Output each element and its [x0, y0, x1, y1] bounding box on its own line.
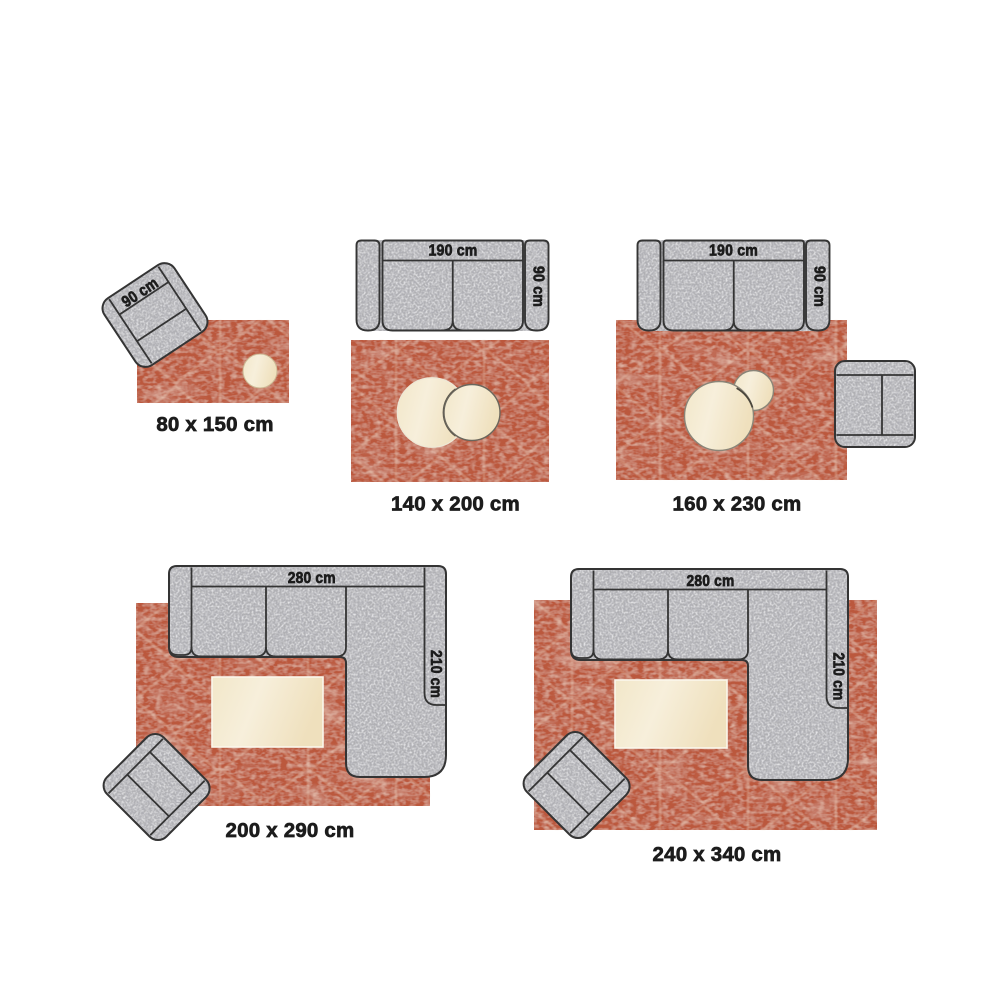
svg-text:240 x 340 cm: 240 x 340 cm: [653, 843, 782, 866]
svg-text:80 x 150 cm: 80 x 150 cm: [156, 413, 273, 436]
svg-text:210 cm: 210 cm: [427, 650, 444, 698]
svg-text:280 cm: 280 cm: [687, 573, 735, 590]
svg-text:190 cm: 190 cm: [429, 243, 478, 260]
svg-text:280 cm: 280 cm: [288, 570, 336, 587]
svg-text:90 cm: 90 cm: [811, 266, 828, 307]
svg-text:200 x 290 cm: 200 x 290 cm: [226, 819, 355, 842]
svg-text:190 cm: 190 cm: [709, 243, 758, 260]
svg-text:90 cm: 90 cm: [530, 266, 547, 307]
svg-text:160 x 230 cm: 160 x 230 cm: [673, 493, 802, 516]
svg-text:210 cm: 210 cm: [830, 653, 847, 701]
svg-text:140 x 200 cm: 140 x 200 cm: [391, 493, 520, 516]
